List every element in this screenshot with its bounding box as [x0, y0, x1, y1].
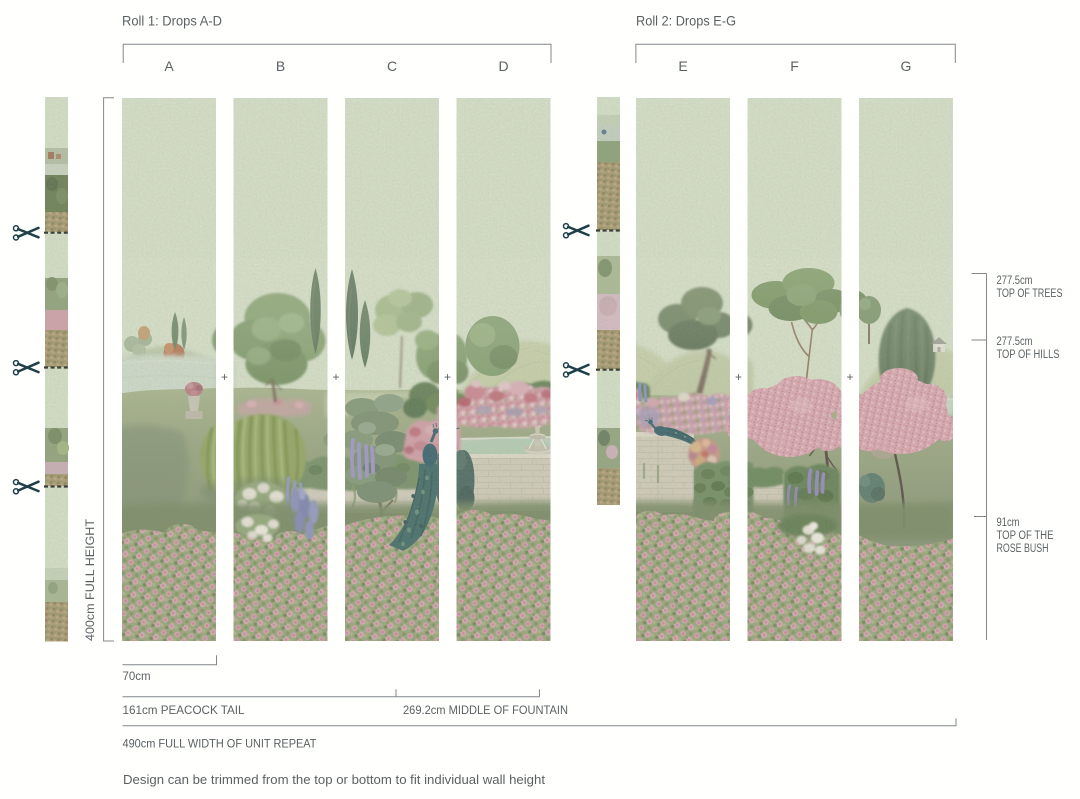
- svg-text:400cm FULL HEIGHT: 400cm FULL HEIGHT: [85, 519, 97, 641]
- svg-text:Design can be trimmed from the: Design can be trimmed from the top or bo…: [123, 772, 545, 787]
- svg-text:277.5cm: 277.5cm: [997, 336, 1033, 348]
- svg-text:TOP OF TREES: TOP OF TREES: [997, 288, 1063, 300]
- svg-text:C: C: [387, 58, 397, 74]
- svg-text:TOP OF HILLS: TOP OF HILLS: [997, 349, 1060, 361]
- svg-text:490cm FULL WIDTH OF UNIT REPEA: 490cm FULL WIDTH OF UNIT REPEAT: [123, 739, 317, 751]
- svg-text:B: B: [276, 58, 285, 74]
- svg-text:+: +: [332, 370, 339, 384]
- svg-text:161cm PEACOCK TAIL: 161cm PEACOCK TAIL: [123, 705, 246, 717]
- svg-text:277.5cm: 277.5cm: [997, 275, 1033, 287]
- svg-text:269.2cm MIDDLE OF FOUNTAIN: 269.2cm MIDDLE OF FOUNTAIN: [403, 705, 568, 717]
- svg-text:+: +: [846, 370, 853, 384]
- svg-text:Roll 2: Drops E-G: Roll 2: Drops E-G: [636, 13, 736, 29]
- svg-text:TOP OF THE: TOP OF THE: [997, 530, 1054, 542]
- svg-text:+: +: [735, 370, 742, 384]
- svg-text:E: E: [678, 58, 687, 74]
- svg-text:F: F: [790, 58, 799, 74]
- svg-text:Roll 1: Drops A-D: Roll 1: Drops A-D: [122, 13, 222, 29]
- svg-text:+: +: [221, 370, 228, 384]
- svg-text:A: A: [164, 58, 174, 74]
- svg-text:+: +: [444, 370, 451, 384]
- svg-text:G: G: [901, 58, 912, 74]
- svg-text:70cm: 70cm: [123, 671, 151, 683]
- svg-text:ROSE BUSH: ROSE BUSH: [997, 543, 1049, 555]
- svg-text:D: D: [498, 58, 508, 74]
- svg-text:91cm: 91cm: [997, 517, 1020, 529]
